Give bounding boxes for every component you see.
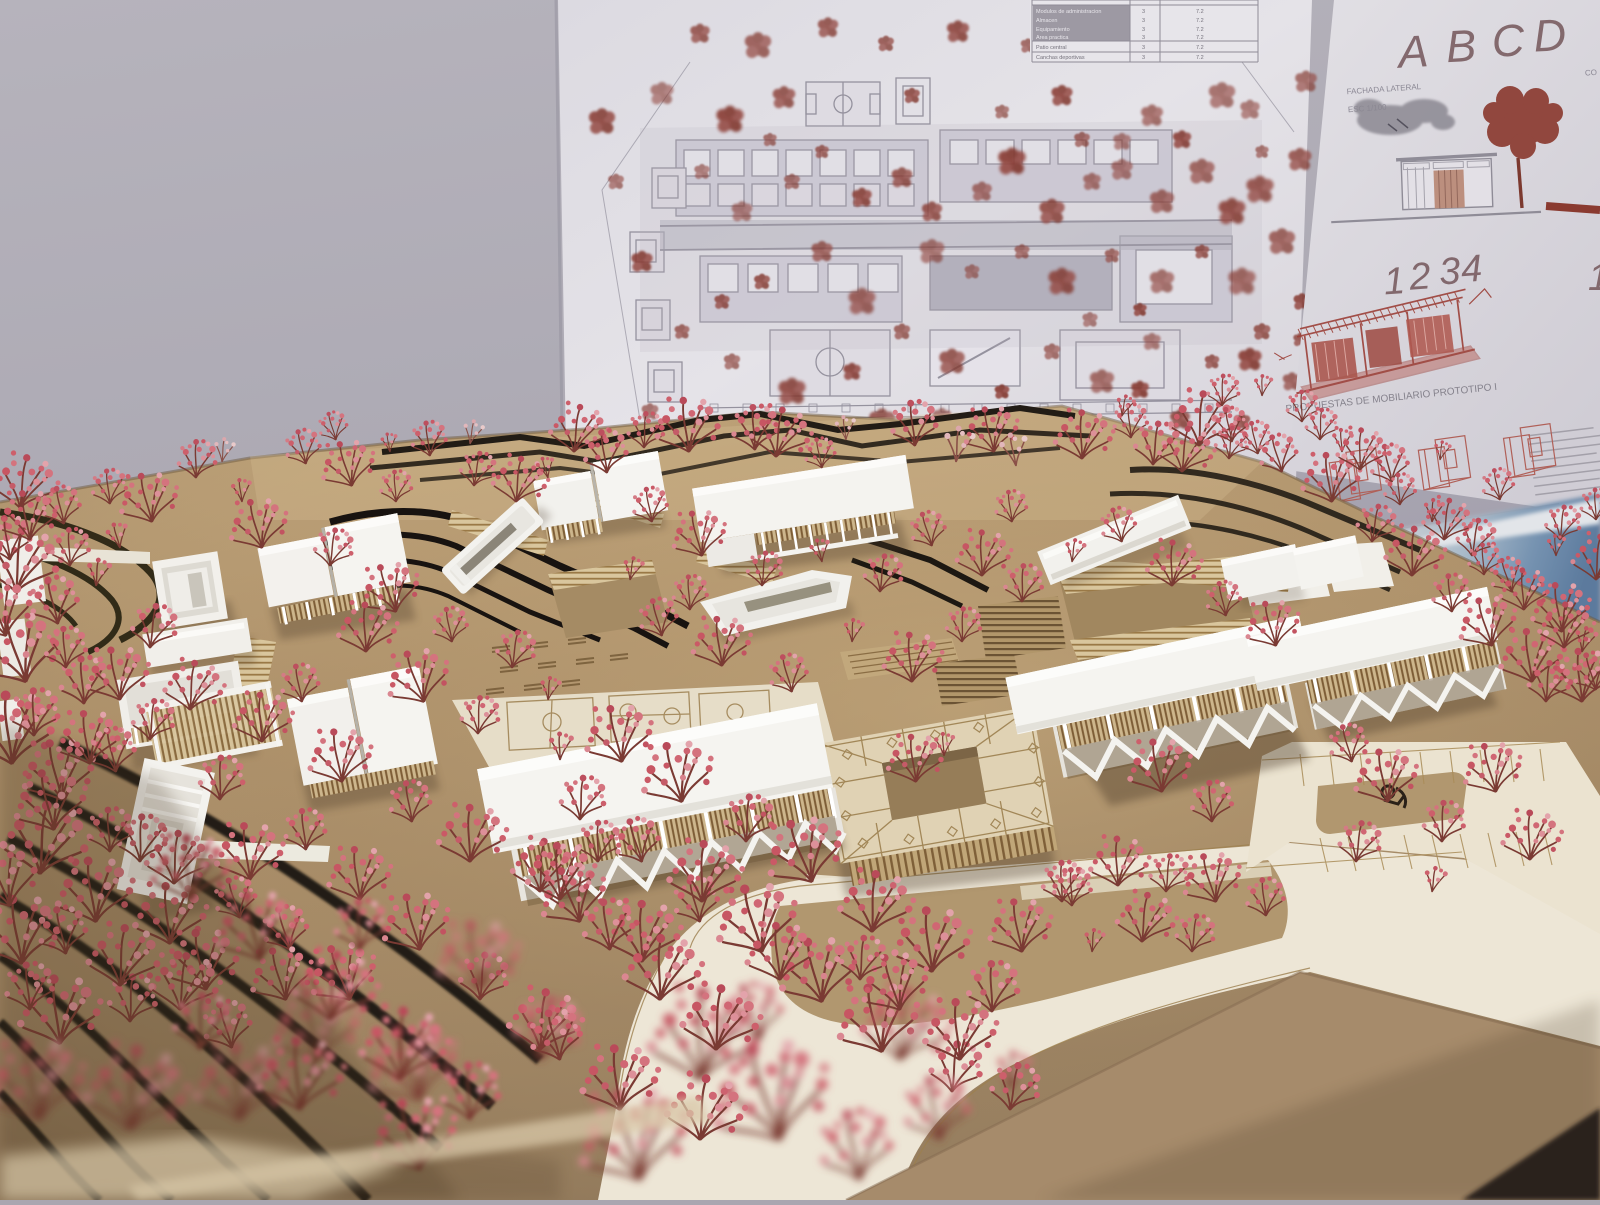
svg-text:3: 3 bbox=[1142, 45, 1145, 51]
svg-text:1: 1 bbox=[1382, 260, 1406, 303]
svg-text:C: C bbox=[1491, 14, 1527, 67]
svg-text:3: 3 bbox=[1142, 27, 1145, 33]
svg-text:Almacen: Almacen bbox=[1036, 18, 1057, 24]
svg-text:2: 2 bbox=[1407, 255, 1432, 298]
svg-text:A: A bbox=[1394, 25, 1430, 78]
svg-text:Patio central: Patio central bbox=[1036, 45, 1067, 51]
svg-text:B: B bbox=[1445, 20, 1478, 73]
svg-text:3: 3 bbox=[1142, 55, 1145, 61]
svg-text:7.2: 7.2 bbox=[1196, 9, 1204, 15]
svg-text:1: 1 bbox=[1588, 257, 1600, 299]
svg-text:Equipamiento: Equipamiento bbox=[1036, 27, 1070, 33]
svg-text:Modulos de administracion: Modulos de administracion bbox=[1036, 9, 1101, 15]
svg-text:7.2: 7.2 bbox=[1196, 27, 1204, 33]
svg-text:7.2: 7.2 bbox=[1196, 45, 1204, 51]
svg-text:7.2: 7.2 bbox=[1196, 55, 1204, 61]
svg-text:Area practica: Area practica bbox=[1036, 35, 1069, 41]
svg-text:4: 4 bbox=[1460, 248, 1484, 291]
svg-text:CO: CO bbox=[1585, 68, 1598, 78]
svg-text:7.2: 7.2 bbox=[1196, 35, 1204, 41]
svg-text:Canchas deportivas: Canchas deportivas bbox=[1036, 55, 1085, 61]
svg-text:3: 3 bbox=[1142, 9, 1145, 15]
svg-text:3: 3 bbox=[1142, 18, 1145, 24]
svg-text:3: 3 bbox=[1142, 35, 1145, 41]
svg-text:3: 3 bbox=[1438, 250, 1462, 293]
svg-text:7.2: 7.2 bbox=[1196, 18, 1204, 24]
svg-text:D: D bbox=[1532, 9, 1567, 62]
